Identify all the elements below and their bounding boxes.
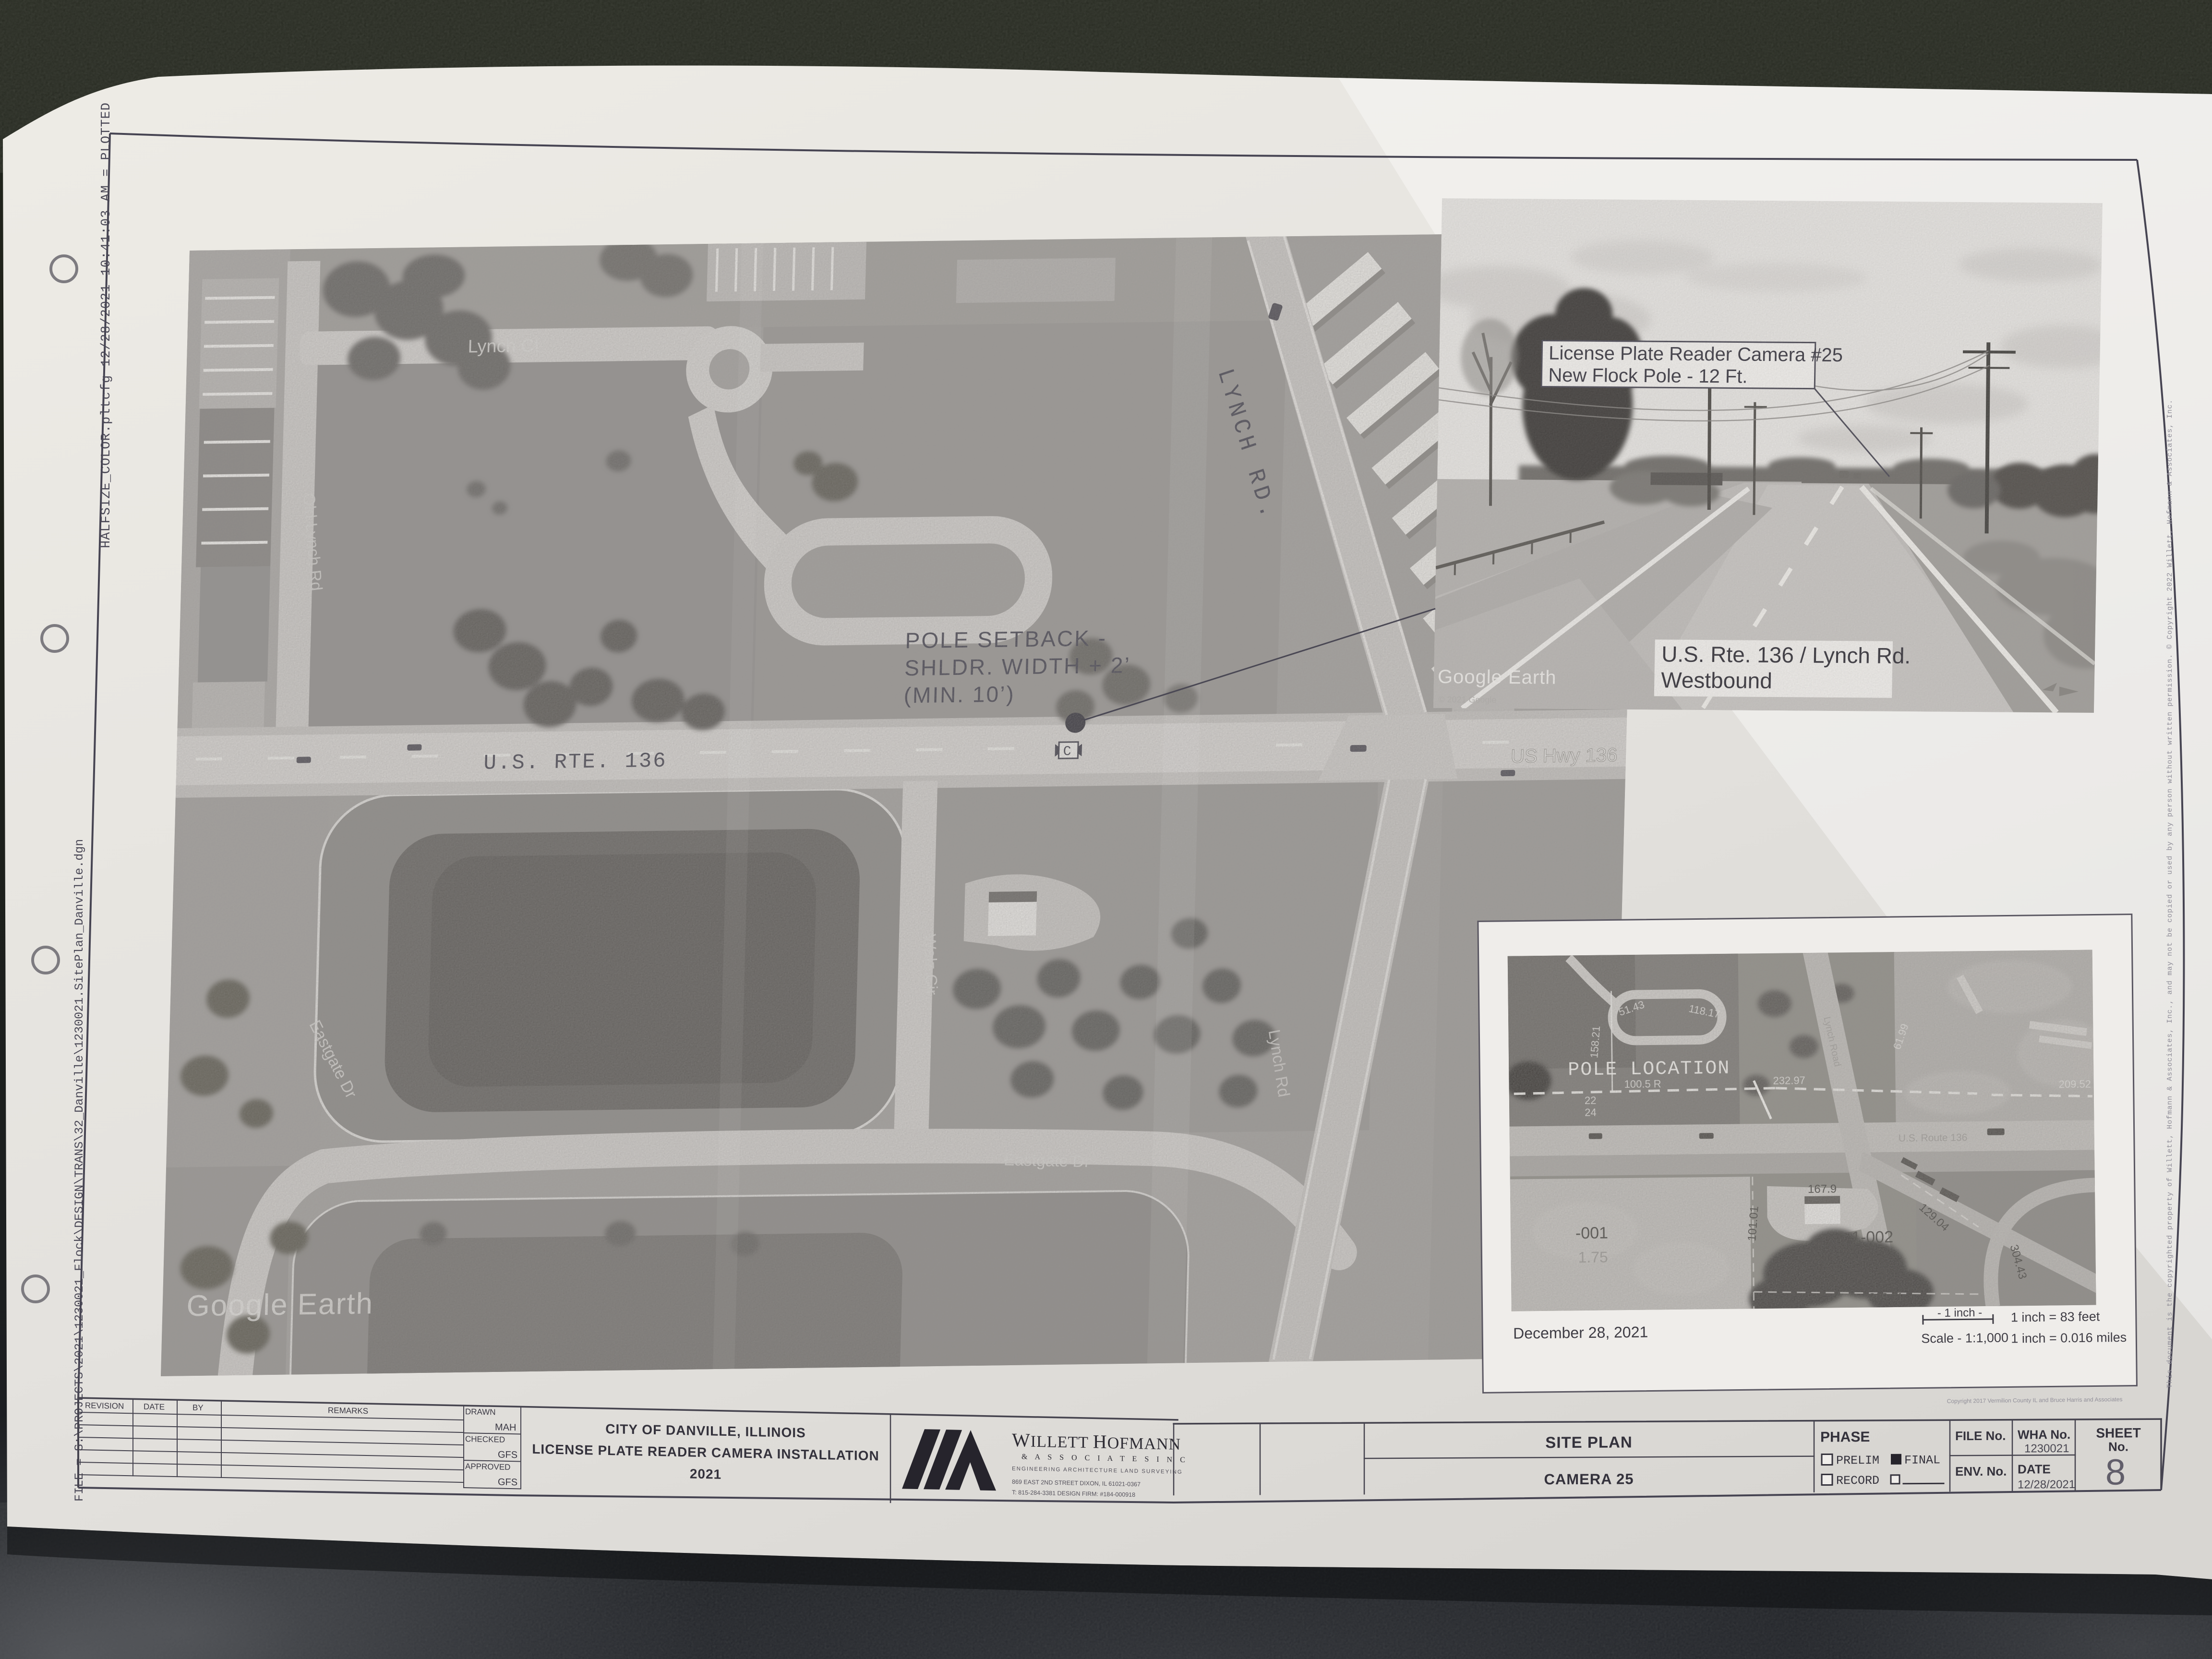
- svg-text:BY: BY: [192, 1403, 204, 1412]
- svg-text:SITE PLAN: SITE PLAN: [1545, 1433, 1632, 1451]
- svg-text:FILE No.: FILE No.: [1955, 1429, 2006, 1443]
- svg-text:Scale - 1:1,000: Scale - 1:1,000: [1921, 1330, 2008, 1346]
- svg-text:GFS: GFS: [498, 1449, 517, 1460]
- svg-text:1230021: 1230021: [2024, 1442, 2069, 1455]
- svg-text:PRELIM: PRELIM: [1836, 1454, 1879, 1467]
- svg-text:HALFSIZE_COLOR.pltcfg 12/28/20: HALFSIZE_COLOR.pltcfg 12/28/2021 10:41:0…: [99, 102, 114, 548]
- svg-text:REMARKS: REMARKS: [328, 1406, 368, 1416]
- svg-text:ENV. No.: ENV. No.: [1955, 1464, 2007, 1479]
- svg-text:DRAWN: DRAWN: [465, 1407, 496, 1417]
- svg-text:APPROVED: APPROVED: [465, 1462, 510, 1472]
- svg-text:RECORD: RECORD: [1836, 1474, 1879, 1488]
- svg-text:GFS: GFS: [498, 1477, 517, 1488]
- svg-text:1 inch = 0.016 miles: 1 inch = 0.016 miles: [2011, 1330, 2127, 1346]
- svg-text:CAMERA 25: CAMERA 25: [1544, 1470, 1634, 1488]
- svg-text:SHEET: SHEET: [2096, 1425, 2140, 1440]
- svg-text:FILE = S:\PROJECTS\2021\123002: FILE = S:\PROJECTS\2021\1230021_Flock\DE…: [72, 839, 86, 1502]
- svg-text:MAH: MAH: [495, 1422, 516, 1433]
- svg-text:12/28/2021: 12/28/2021: [2018, 1478, 2075, 1491]
- svg-text:PHASE: PHASE: [1820, 1429, 1870, 1445]
- svg-text:WHA No.: WHA No.: [2018, 1427, 2070, 1442]
- svg-text:CHECKED: CHECKED: [465, 1434, 505, 1444]
- svg-text:1 inch = 83 feet: 1 inch = 83 feet: [2011, 1309, 2100, 1324]
- svg-text:8: 8: [2105, 1452, 2126, 1492]
- svg-text:DATE: DATE: [2018, 1462, 2051, 1476]
- svg-text:December 28, 2021: December 28, 2021: [1513, 1323, 1648, 1342]
- svg-text:This document is the copyright: This document is the copyrighted propert…: [2166, 399, 2174, 1388]
- svg-text:DATE: DATE: [144, 1402, 165, 1412]
- svg-text:FINAL: FINAL: [1904, 1453, 1940, 1467]
- svg-text:REVISION: REVISION: [85, 1401, 124, 1411]
- svg-text:2021: 2021: [690, 1466, 721, 1481]
- svg-text:- 1 inch -: - 1 inch -: [1937, 1306, 1983, 1320]
